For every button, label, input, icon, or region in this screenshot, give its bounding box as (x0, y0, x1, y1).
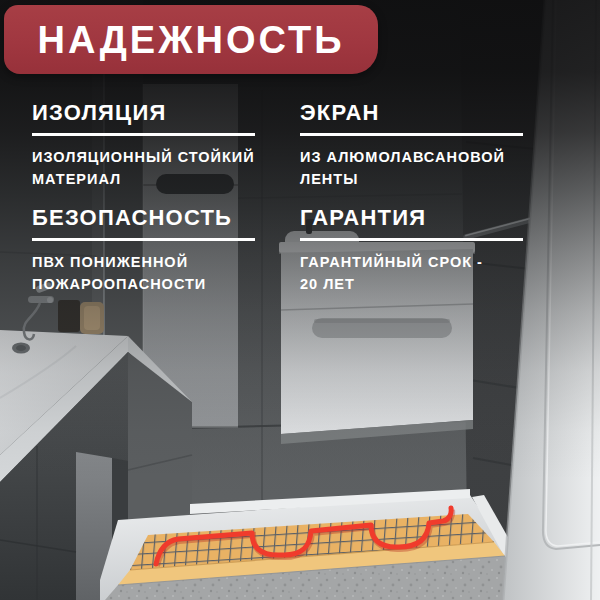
feature-heading: ЭКРАН (300, 100, 523, 126)
feature-heading: БЕЗОПАСНОСТЬ (32, 205, 255, 231)
feature-description: ГАРАНТИЙНЫЙ СРОК - 20 ЛЕТ (300, 252, 523, 296)
feature-description: ИЗ АЛЮМОЛАВСАНОВОЙ ЛЕНТЫ (300, 147, 523, 191)
feature-divider (300, 133, 523, 136)
feature-grid: ИЗОЛЯЦИЯ ИЗОЛЯЦИОННЫЙ СТОЙКИЙ МАТЕРИАЛ Э… (0, 0, 600, 340)
feature-description: ИЗОЛЯЦИОННЫЙ СТОЙКИЙ МАТЕРИАЛ (32, 147, 255, 191)
feature-divider (32, 133, 255, 136)
feature-safety: БЕЗОПАСНОСТЬ ПВХ ПОНИЖЕННОЙ ПОЖАРООПАСНО… (32, 205, 255, 295)
feature-divider (300, 238, 523, 241)
feature-divider (32, 238, 255, 241)
feature-screen: ЭКРАН ИЗ АЛЮМОЛАВСАНОВОЙ ЛЕНТЫ (300, 100, 523, 190)
promo-image: НАДЕЖНОСТЬ ИЗОЛЯЦИЯ ИЗОЛЯЦИОННЫЙ СТОЙКИЙ… (0, 0, 600, 600)
feature-heading: ГАРАНТИЯ (300, 205, 523, 231)
feature-description: ПВХ ПОНИЖЕННОЙ ПОЖАРООПАСНОСТИ (32, 252, 255, 296)
feature-warranty: ГАРАНТИЯ ГАРАНТИЙНЫЙ СРОК - 20 ЛЕТ (300, 205, 523, 295)
feature-heading: ИЗОЛЯЦИЯ (32, 100, 255, 126)
feature-insulation: ИЗОЛЯЦИЯ ИЗОЛЯЦИОННЫЙ СТОЙКИЙ МАТЕРИАЛ (32, 100, 255, 190)
